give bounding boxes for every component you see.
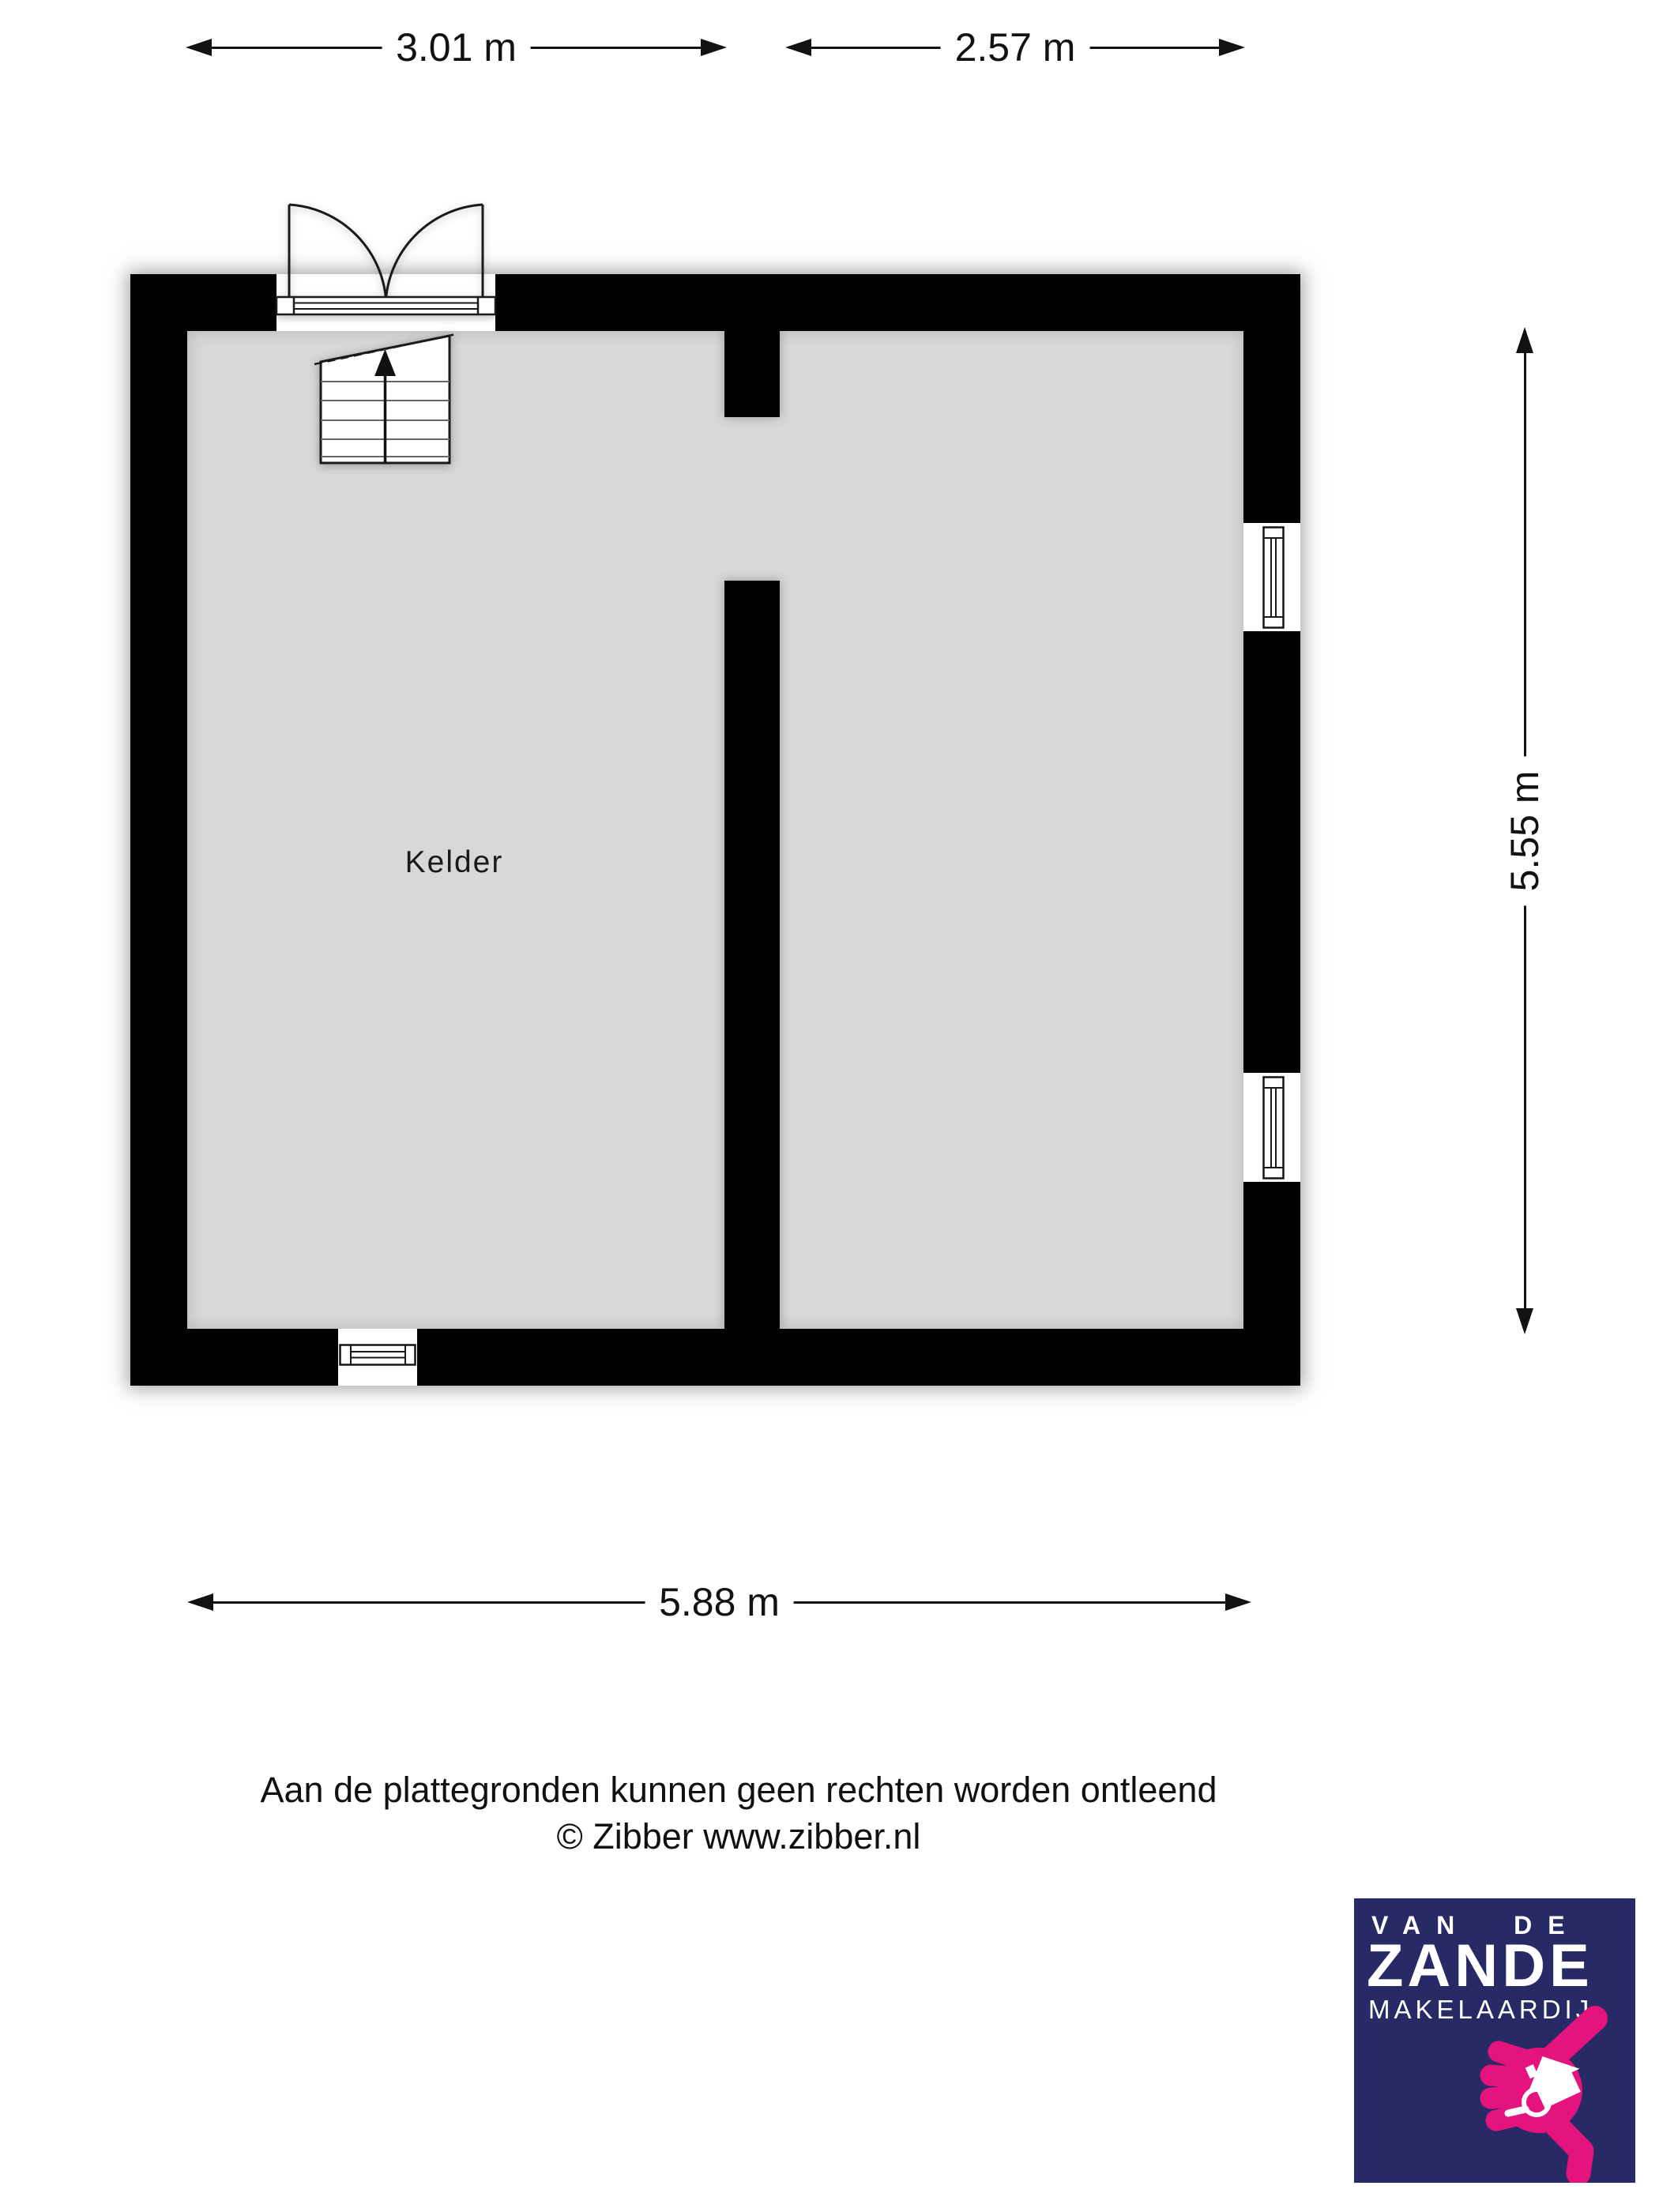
arrowhead-right-icon [1225,1593,1251,1611]
dimension-bottom: 5.88 m [188,1582,1251,1622]
floorplan-page: 3.01 m 2.57 m 5.55 m 5.88 m [0,0,1659,2212]
floor-area [187,331,1243,1329]
dimension-label: 3.01 m [382,24,531,70]
dimension-label: 5.55 m [1502,756,1548,905]
agency-logo: VAN DE ZANDE MAKELAARDIJ [1354,1898,1635,2183]
arrowhead-down-icon [1516,1308,1533,1334]
arrowhead-right-icon [1219,39,1245,56]
hand-holding-house-icon [1469,2001,1635,2183]
dimension-top-left: 3.01 m [186,28,726,67]
window-icon [339,1344,416,1366]
dimension-right: 5.55 m [1507,328,1543,1334]
disclaimer-line1: Aan de plattegronden kunnen geen rechten… [146,1766,1331,1813]
disclaimer-line2: © Zibber www.zibber.nl [146,1813,1331,1860]
arrowhead-up-icon [1516,327,1533,353]
dimension-label: 5.88 m [645,1579,794,1625]
interior-wall [724,581,780,1329]
window-icon [1262,526,1285,629]
window-icon [1262,1076,1285,1179]
arrowhead-left-icon [186,39,212,56]
interior-wall-stub [724,331,780,417]
arrowhead-left-icon [785,39,811,56]
room-label: Kelder [352,845,557,880]
stairs-icon [312,325,462,468]
dimension-top-right: 2.57 m [786,28,1244,67]
dimension-label: 2.57 m [941,24,1090,70]
logo-text-zande: ZANDE [1367,1932,1593,2000]
disclaimer: Aan de plattegronden kunnen geen rechten… [146,1766,1331,1860]
arrowhead-right-icon [701,39,727,56]
arrowhead-left-icon [187,1593,213,1611]
double-door-icon [261,194,513,344]
